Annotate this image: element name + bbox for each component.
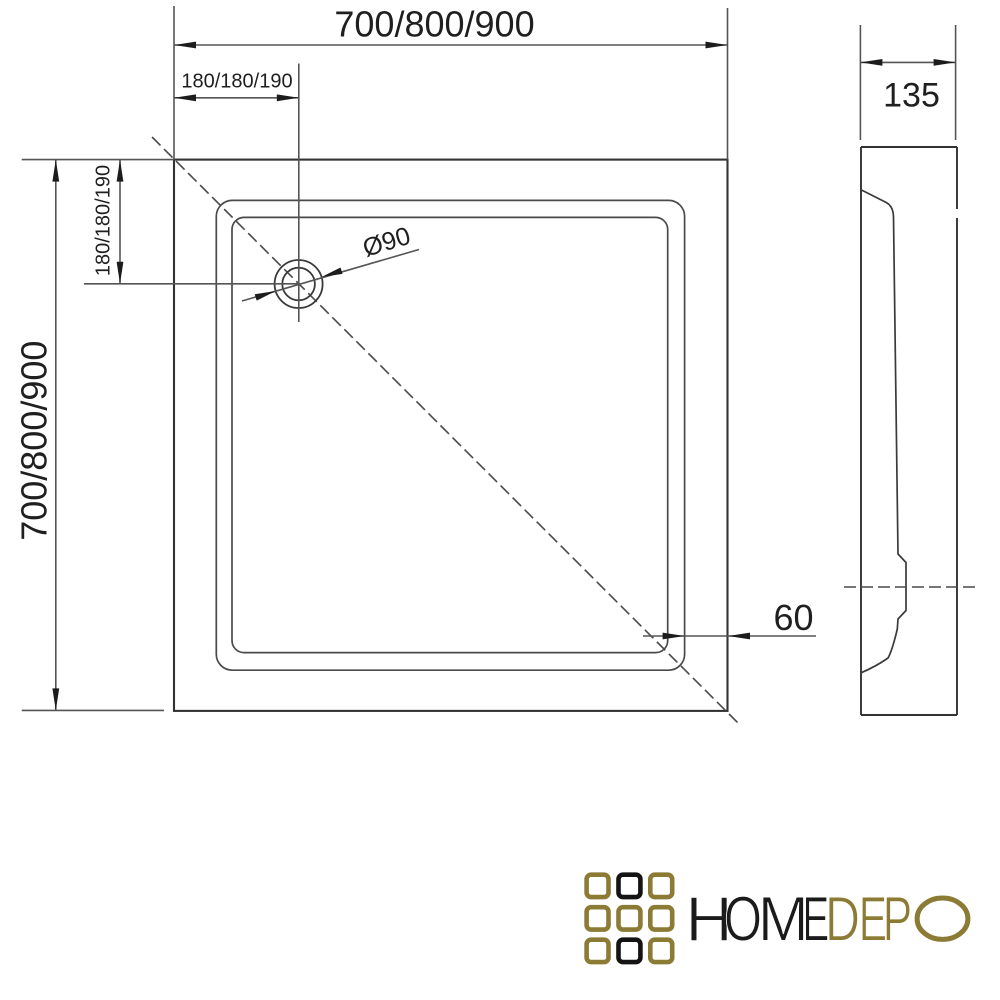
svg-text:700/800/900: 700/800/900 (334, 4, 534, 45)
svg-text:180/180/190: 180/180/190 (93, 165, 115, 276)
svg-text:135: 135 (883, 77, 940, 115)
svg-text:60: 60 (773, 597, 813, 638)
svg-text:D: D (825, 883, 860, 954)
svg-text:700/800/900: 700/800/900 (14, 341, 55, 541)
svg-text:M: M (758, 884, 809, 954)
svg-text:O: O (724, 883, 762, 953)
svg-text:P: P (883, 884, 912, 955)
svg-text:180/180/190: 180/180/190 (181, 71, 292, 93)
